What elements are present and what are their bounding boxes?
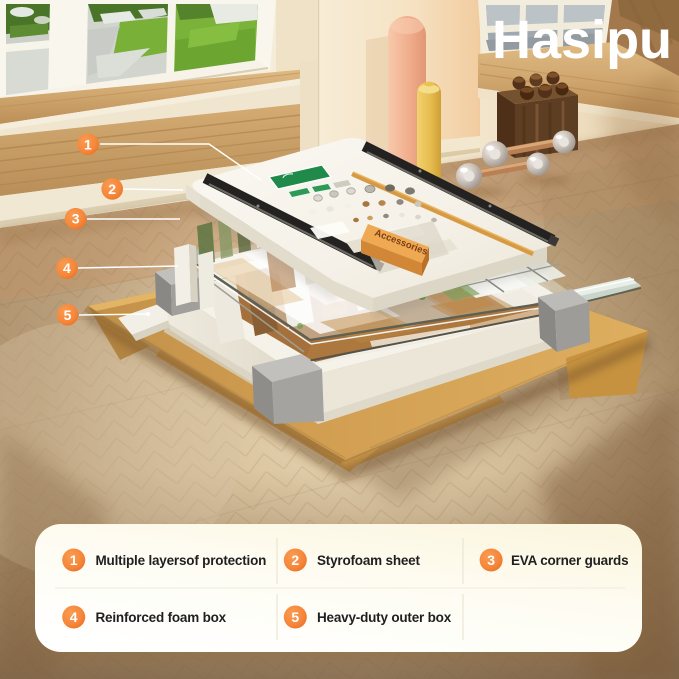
svg-text:EVA corner guards: EVA corner guards (511, 553, 628, 568)
svg-text:4: 4 (63, 260, 71, 276)
svg-text:Multiple layersof protection: Multiple layersof protection (96, 553, 267, 568)
svg-text:4: 4 (70, 609, 78, 625)
svg-text:Heavy-duty outer box: Heavy-duty outer box (317, 610, 452, 625)
svg-text:3: 3 (487, 552, 495, 568)
svg-text:5: 5 (291, 609, 299, 625)
svg-text:2: 2 (108, 181, 116, 197)
svg-text:5: 5 (64, 307, 72, 323)
svg-text:1: 1 (70, 552, 78, 568)
svg-text:3: 3 (72, 211, 80, 227)
svg-text:1: 1 (84, 136, 92, 152)
svg-text:Reinforced foam box: Reinforced foam box (96, 610, 227, 625)
svg-text:Hasipu: Hasipu (492, 10, 672, 70)
svg-text:Styrofoam sheet: Styrofoam sheet (317, 553, 420, 568)
svg-text:2: 2 (291, 552, 299, 568)
